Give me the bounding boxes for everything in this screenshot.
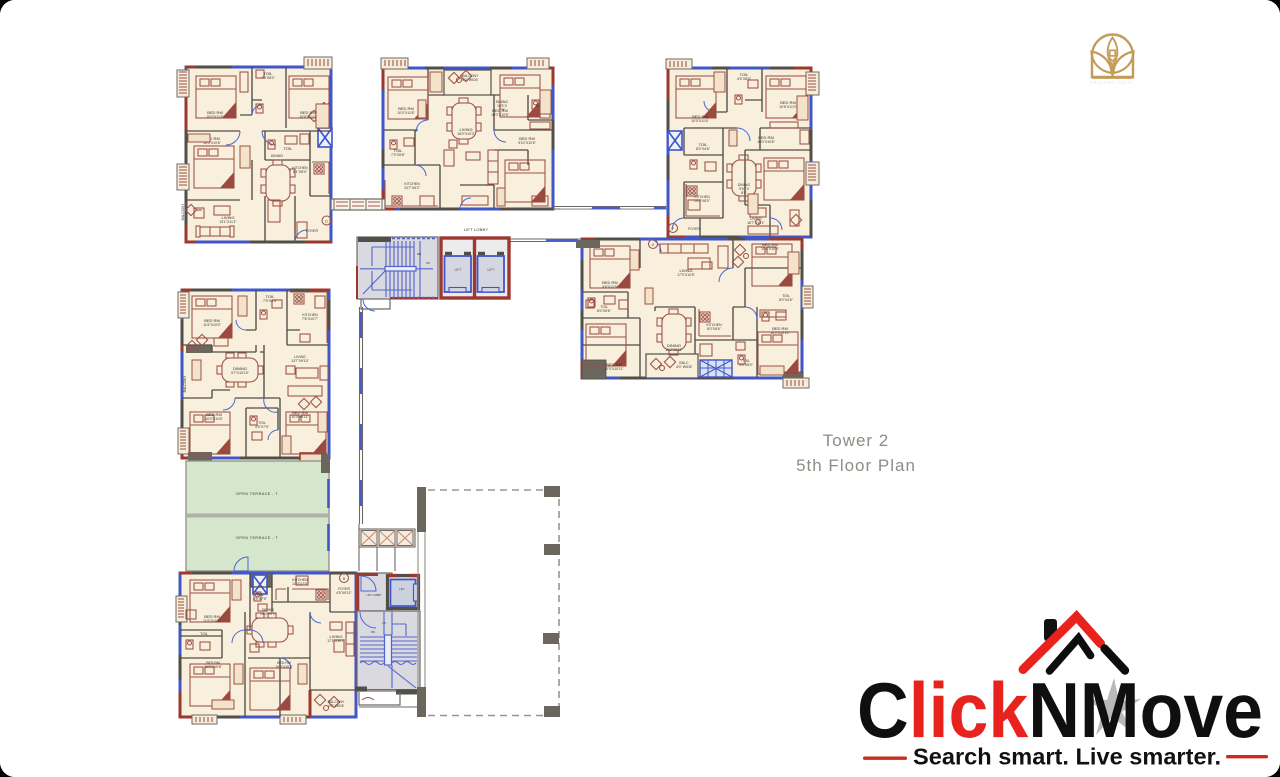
svg-text:4'0" WIDE: 4'0" WIDE <box>676 365 693 369</box>
svg-text:8'0": 8'0" <box>741 191 748 195</box>
svg-text:4'0" WIDE: 4'0" WIDE <box>328 704 345 708</box>
svg-text:10'0"X10'6": 10'0"X10'6" <box>491 113 510 117</box>
svg-text:8'0"X4'6": 8'0"X4'6" <box>779 298 794 302</box>
svg-text:10'0"X10'11": 10'0"X10'11" <box>604 367 624 371</box>
svg-text:TOIL: TOIL <box>200 632 208 636</box>
svg-text:8'0"X4'6": 8'0"X4'6" <box>696 147 711 151</box>
svg-text:10'0"X11'6": 10'0"X11'6" <box>397 111 415 115</box>
svg-text:4'5"X7'9": 4'5"X7'9" <box>255 425 270 429</box>
svg-text:TOIL: TOIL <box>284 146 294 151</box>
svg-text:10'0"X11'0": 10'0"X11'0" <box>299 115 317 119</box>
svg-text:13'4"X9'0": 13'4"X9'0" <box>260 612 277 616</box>
svg-text:DINING: DINING <box>271 154 284 158</box>
svg-text:LIFT: LIFT <box>399 587 405 591</box>
svg-text:BALCONY: BALCONY <box>183 375 187 392</box>
svg-text:LIFT LOBBY: LIFT LOBBY <box>464 227 489 232</box>
svg-text:LIFT LOBBY: LIFT LOBBY <box>366 593 381 597</box>
svg-text:10'7"X6'2": 10'7"X6'2" <box>404 186 421 190</box>
svg-text:10'6"X11'0": 10'6"X11'0" <box>779 105 797 109</box>
svg-text:G: G <box>652 243 655 247</box>
svg-text:FOYER: FOYER <box>688 227 701 231</box>
svg-text:LIFT: LIFT <box>455 268 462 272</box>
svg-text:10'0"X10'6": 10'0"X10'6" <box>204 665 223 669</box>
svg-text:9'10"X10'6": 9'10"X10'6" <box>518 141 537 145</box>
svg-text:10'0"X7'0": 10'0"X7'0" <box>292 582 309 586</box>
svg-text:BALCONY: BALCONY <box>181 203 185 220</box>
svg-text:5th Floor Plan: 5th Floor Plan <box>796 456 916 475</box>
svg-text:11'6"X10'0": 11'6"X10'0" <box>203 323 221 327</box>
svg-text:Search smart. Live smarter.: Search smart. Live smarter. <box>913 744 1221 770</box>
svg-text:8'1"X8'0": 8'1"X8'0" <box>293 170 308 174</box>
svg-text:8'0"X8'6": 8'0"X8'6" <box>707 327 722 331</box>
svg-text:9'6"X11'5": 9'6"X11'5" <box>602 285 618 289</box>
svg-text:DN: DN <box>371 630 375 634</box>
svg-text:FOYER: FOYER <box>306 229 319 233</box>
svg-text:4'5"X9'11": 4'5"X9'11" <box>336 591 352 595</box>
svg-text:10'0"X10'10": 10'0"X10'10" <box>770 331 791 335</box>
svg-text:10'0"X10'6": 10'0"X10'6" <box>757 140 776 144</box>
svg-text:OPEN TERRACE - T: OPEN TERRACE - T <box>236 536 278 540</box>
svg-text:8'0"X5'6": 8'0"X5'6" <box>597 309 612 313</box>
svg-text:LIFT: LIFT <box>488 268 495 272</box>
svg-text:13'1"X11'1": 13'1"X11'1" <box>219 220 237 224</box>
svg-text:10'0"X11'6": 10'0"X11'6" <box>206 115 224 119</box>
svg-text:11'6"X10'6": 11'6"X10'6" <box>203 619 221 623</box>
svg-text:4'5"X7'9": 4'5"X7'9" <box>253 597 268 601</box>
svg-text:16'0"X10'3": 16'0"X10'3" <box>457 132 476 136</box>
svg-text:DN: DN <box>417 252 421 256</box>
svg-text:ARIHANT ADITA: ARIHANT ADITA <box>1090 80 1134 85</box>
svg-text:10'0"X11'6": 10'0"X11'6" <box>691 119 709 123</box>
svg-text:7'9"X4'5": 7'9"X4'5" <box>263 299 278 303</box>
svg-text:ClickNMove: ClickNMove <box>857 666 1263 754</box>
svg-text:13'7"X9'10": 13'7"X9'10" <box>291 359 310 363</box>
svg-text:7'9": 7'9" <box>499 108 506 112</box>
svg-text:17'3"X10'5": 17'3"X10'5" <box>677 273 696 277</box>
svg-text:OPEN TERRACE - T: OPEN TERRACE - T <box>236 492 278 496</box>
svg-text:4'6"X8'0": 4'6"X8'0" <box>737 77 752 81</box>
svg-text:Tower 2: Tower 2 <box>823 431 890 450</box>
svg-text:4'6"X8'0": 4'6"X8'0" <box>739 363 754 367</box>
svg-text:10'2"X8'11": 10'2"X8'11" <box>665 348 683 352</box>
svg-text:10'0"X11'6": 10'0"X11'6" <box>205 417 223 421</box>
svg-text:17'1"X10'7": 17'1"X10'7" <box>327 639 346 643</box>
svg-text:10'0"X8'0": 10'0"X8'0" <box>694 199 711 203</box>
svg-text:10'0"X9'11": 10'0"X9'11" <box>291 415 309 419</box>
svg-text:10'6"X10'6": 10'6"X10'6" <box>275 665 294 669</box>
svg-text:7'6"X10'7": 7'6"X10'7" <box>302 317 319 321</box>
svg-text:UP: UP <box>426 261 430 265</box>
svg-text:10'0"X10'6": 10'0"X10'6" <box>761 247 780 251</box>
svg-text:4'0" WIDE: 4'0" WIDE <box>462 78 479 82</box>
svg-text:7'3"X5'8": 7'3"X5'8" <box>391 153 406 157</box>
svg-text:9'7"X13'10": 9'7"X13'10" <box>231 371 250 375</box>
svg-text:F: F <box>672 227 674 231</box>
